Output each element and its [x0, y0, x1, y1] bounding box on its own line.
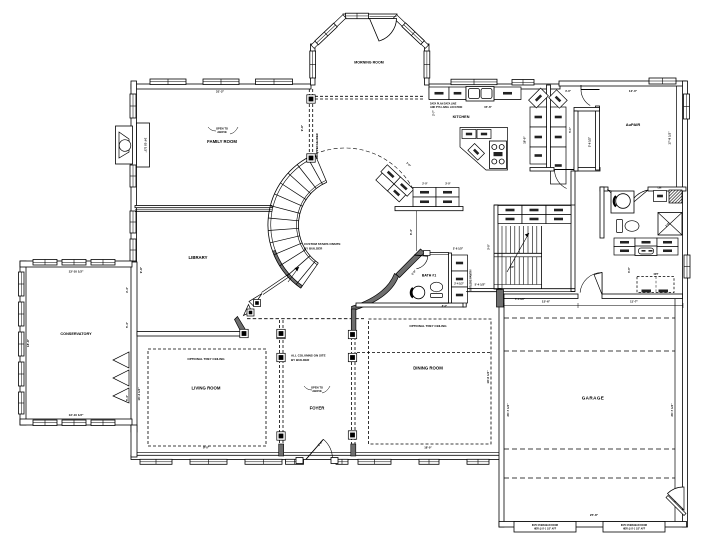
svg-text:2'-6 1/2": 2'-6 1/2": [453, 247, 464, 251]
svg-text:BY BUILDER: BY BUILDER: [291, 358, 310, 362]
svg-text:OPT: OPT: [654, 274, 659, 276]
svg-text:BATH #1: BATH #1: [422, 274, 436, 278]
svg-text:KITCHEN: KITCHEN: [453, 115, 470, 119]
svg-text:25'-8": 25'-8": [590, 513, 599, 517]
svg-text:FAMILY ROOM: FAMILY ROOM: [207, 139, 237, 144]
svg-text:GARAGE: GARAGE: [582, 396, 605, 401]
svg-text:OPTIONAL TREY CEILING: OPTIONAL TREY CEILING: [187, 357, 225, 361]
svg-text:15'-6": 15'-6": [542, 300, 551, 304]
svg-text:CUSTOM STAIRS ONSITE: CUSTOM STAIRS ONSITE: [304, 242, 341, 246]
svg-text:3'-0": 3'-0": [487, 243, 491, 250]
svg-text:FOYER: FOYER: [310, 406, 326, 411]
svg-text:2'-4 1/2": 2'-4 1/2": [454, 283, 464, 286]
svg-text:3'-6 1/2": 3'-6 1/2": [588, 136, 592, 147]
svg-text:OPEN TO: OPEN TO: [311, 386, 323, 390]
svg-text:15'-6": 15'-6": [484, 105, 492, 109]
svg-text:8070 OVERHEAD DOOR: 8070 OVERHEAD DOOR: [621, 524, 648, 527]
svg-text:AuPAIR: AuPAIR: [626, 122, 641, 127]
svg-text:BY BUILDER: BY BUILDER: [304, 247, 323, 251]
svg-text:OPEN TO: OPEN TO: [216, 127, 228, 131]
svg-text:6'-4": 6'-4": [409, 228, 413, 235]
svg-text:18'-0": 18'-0": [523, 136, 527, 144]
svg-text:LIBRARY: LIBRARY: [189, 255, 208, 260]
svg-text:BUTLERS PANTRY: BUTLERS PANTRY: [470, 269, 473, 291]
svg-text:18'-0": 18'-0": [424, 446, 432, 450]
svg-text:LIVING ROOM: LIVING ROOM: [192, 386, 221, 391]
svg-text:AND PYS LABEL LOCATION: AND PYS LABEL LOCATION: [430, 106, 462, 109]
svg-text:HDR @ 8'-1 1/2" AFF: HDR @ 8'-1 1/2" AFF: [534, 528, 557, 531]
svg-text:9'-8": 9'-8": [300, 124, 304, 131]
svg-text:31'-2": 31'-2": [216, 90, 225, 94]
svg-text:ABOVE: ABOVE: [312, 389, 322, 393]
svg-text:ABOVE: ABOVE: [217, 130, 227, 134]
svg-text:18'-6 1/2": 18'-6 1/2": [486, 370, 490, 384]
svg-text:HDR @ 8'-1 1/2" AFF: HDR @ 8'-1 1/2" AFF: [623, 528, 646, 531]
svg-text:5'-4 1/2": 5'-4 1/2": [475, 283, 486, 287]
svg-text:OPTIONAL TREY CEILING: OPTIONAL TREY CEILING: [409, 324, 447, 328]
svg-text:26'-7 1/2": 26'-7 1/2": [506, 403, 510, 417]
svg-text:MORNING ROOM: MORNING ROOM: [354, 61, 384, 65]
svg-text:5'-4 1/2": 5'-4 1/2": [515, 297, 526, 301]
svg-text:DINING ROOM: DINING ROOM: [413, 366, 443, 371]
svg-text:11'-7": 11'-7": [630, 300, 639, 304]
svg-text:5'-1": 5'-1": [568, 126, 572, 133]
svg-text:13'-10 1/2": 13'-10 1/2": [69, 413, 84, 417]
svg-text:CONSERVATORY: CONSERVATORY: [60, 332, 92, 336]
svg-text:5'-4": 5'-4": [125, 321, 129, 328]
svg-text:3'-0": 3'-0": [445, 183, 451, 186]
svg-text:26'-7 1/2": 26'-7 1/2": [670, 403, 674, 417]
svg-text:5'-4": 5'-4": [125, 394, 129, 401]
svg-text:14'-10 1/2": 14'-10 1/2": [144, 138, 148, 153]
svg-text:UP: UP: [510, 266, 514, 269]
svg-text:LIN: LIN: [658, 188, 662, 190]
svg-text:6'-0": 6'-0": [627, 266, 631, 273]
svg-text:8'-0": 8'-0": [442, 305, 448, 308]
svg-text:ALL COLUMNS ON SITE: ALL COLUMNS ON SITE: [291, 354, 326, 358]
svg-text:16'-4 1/2": 16'-4 1/2": [137, 387, 141, 401]
svg-text:2'-0": 2'-0": [422, 183, 428, 186]
svg-text:4'-0": 4'-0": [565, 89, 572, 93]
svg-text:9'-8": 9'-8": [139, 266, 143, 273]
svg-text:12'-0": 12'-0": [629, 89, 638, 93]
svg-text:18'-8": 18'-8": [26, 338, 30, 347]
svg-text:8070 OVERHEAD DOOR: 8070 OVERHEAD DOOR: [532, 524, 559, 527]
svg-text:13'-10 1/2": 13'-10 1/2": [69, 270, 84, 274]
svg-text:17'-9 1/2": 17'-9 1/2": [668, 131, 672, 145]
svg-text:2'-7": 2'-7": [432, 109, 436, 116]
svg-text:4'-4": 4'-4": [125, 286, 129, 293]
svg-text:9'-0": 9'-0": [203, 446, 210, 450]
